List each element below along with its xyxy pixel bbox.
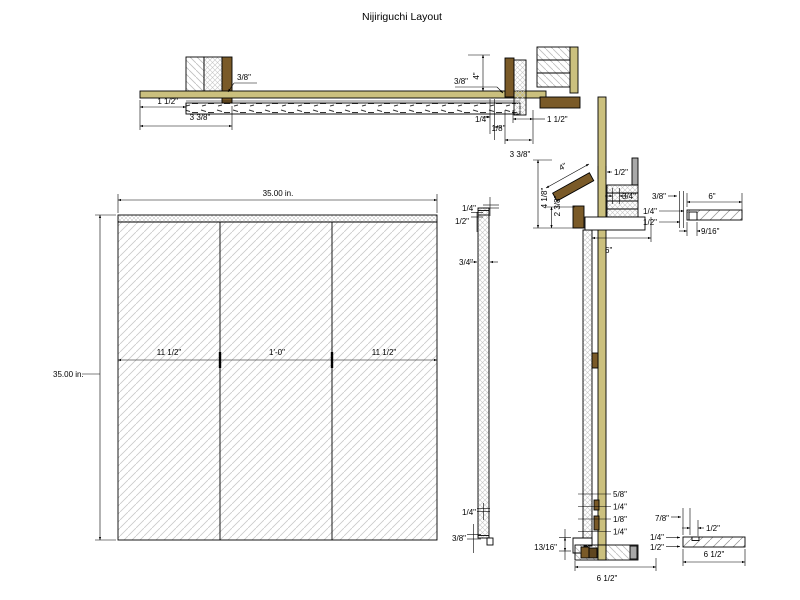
dim-jamb-sill-height: 13/16"	[534, 543, 557, 552]
dim-jamb-sill-width: 6 1/2"	[597, 574, 618, 583]
dim-detail-top-a: 3/8"	[652, 192, 666, 201]
dim-panel-center: 1'-0"	[269, 348, 285, 357]
dim-edge-top-a: 1/4"	[462, 204, 476, 213]
dim-detail-bottom-d: 1/2"	[650, 543, 664, 552]
dim-panel-left-stile: 11 1/2"	[157, 348, 182, 357]
dim-detail-top-d: 1/2"	[643, 218, 657, 227]
dim-head-reveal: 1/8"	[492, 124, 506, 133]
jamb-panel-edge	[583, 230, 592, 545]
dim-jamb-depth: 6"	[605, 246, 612, 255]
dim-jamb-gap-half: 1/2"	[614, 168, 628, 177]
dim-head-left-offset: 1 1/2"	[157, 97, 178, 106]
dim-detail-bottom-e: 6 1/2"	[704, 550, 725, 559]
head-right-brown-rail	[540, 97, 580, 108]
dim-head-jamb-gap: 3/8"	[237, 73, 251, 82]
jamb-head-rail	[585, 217, 645, 230]
jamb-stop-lower	[594, 516, 599, 530]
panel-edge-foot	[487, 538, 493, 545]
dim-jamb-stop: 3/4"	[622, 192, 636, 201]
jamb-sill-brown-b	[589, 548, 597, 558]
head-right-jamb-strip	[505, 58, 514, 97]
panel-edge-view: 1/4" 1/2" 3/4" 1/4" 3/8"	[452, 197, 499, 553]
panel-face	[118, 222, 437, 540]
dim-jamb-stack-b: 1/4"	[613, 503, 627, 512]
drawing-canvas: Nijiriguchi Layout 3/8" 1 1/2" 3 3/8" 3/…	[0, 0, 800, 600]
dim-panel-width: 35.00 in.	[263, 189, 294, 198]
dim-jamb-lintel-inner: 2 3/8"	[553, 196, 562, 217]
dim-edge-bottom-b: 3/8"	[452, 534, 466, 543]
dim-jamb-lintel-height: 4 1/8"	[540, 188, 549, 209]
head-left-block-inner	[204, 57, 222, 91]
head-left-block-outer	[186, 57, 204, 91]
dim-jamb-stack-c: 1/8"	[613, 515, 627, 524]
panel-front-view: 35.00 in. 35.00 in. 11 1/2" 1'-0" 11 1/2…	[53, 189, 437, 540]
dim-head-right-gap: 3/8"	[454, 77, 468, 86]
jamb-sill-brown-a	[581, 547, 589, 558]
dim-detail-top-c: 1/4"	[643, 207, 657, 216]
drawing-sheet: Nijiriguchi Layout 3/8" 1 1/2" 3 3/8" 3/…	[0, 0, 800, 600]
head-right-column	[514, 60, 526, 115]
dim-head-right-height: 4"	[472, 72, 481, 79]
dim-edge-bottom-a: 1/4"	[462, 508, 476, 517]
head-right-tan-strip	[570, 47, 578, 93]
head-right-block	[537, 47, 570, 87]
dim-detail-top-e: 9/16"	[701, 227, 720, 236]
jamb-post	[598, 97, 606, 560]
dim-jamb-stack-d: 1/4"	[613, 528, 627, 537]
dim-detail-bottom-c: 1/4"	[650, 533, 664, 542]
dim-head-right-offset: 1 1/2"	[547, 115, 568, 124]
jamb-batten	[592, 353, 598, 368]
dim-edge-top-b: 1/2"	[455, 217, 469, 226]
panel-edge-strip	[478, 208, 489, 538]
jamb-brown-block	[573, 206, 584, 228]
dim-head-right-depth: 3 3/8"	[510, 150, 531, 159]
dim-head-left-depth: 3 3/8"	[190, 113, 211, 122]
jamb-stop-upper	[594, 500, 599, 510]
jamb-gray-bar	[632, 158, 638, 185]
sill-detail-bottom: 7/8" 1/2" 1/4" 1/2" 6 1/2"	[650, 508, 745, 566]
dim-jamb-stack-a: 5/8"	[613, 490, 627, 499]
dim-detail-bottom-a: 7/8"	[655, 514, 669, 523]
dim-head-panel-gap: 1/4"	[475, 115, 489, 124]
dim-panel-right-stile: 11 1/2"	[372, 348, 397, 357]
jamb-section-view: 4" 1/2" 3/4" 4 1/8" 2 3/8" 6" 5/8" 1/4" …	[533, 97, 656, 583]
dim-edge-thickness: 3/4"	[459, 258, 473, 267]
drawing-title: Nijiriguchi Layout	[362, 11, 442, 23]
detail-top-notch	[689, 212, 697, 220]
dim-jamb-lintel-width: 4"	[557, 161, 568, 172]
head-panel-core	[186, 103, 520, 114]
head-section-view: 3/8" 1 1/2" 3 3/8" 3/8" 4" 1/4" 1/8" 1 1…	[140, 47, 580, 159]
panel-top-band	[118, 215, 437, 222]
dim-panel-height: 35.00 in.	[53, 370, 84, 379]
jamb-post-foot	[598, 545, 606, 560]
detail-bottom-notch	[692, 537, 699, 541]
dim-detail-top-b: 6"	[708, 192, 715, 201]
head-track-board	[140, 91, 546, 98]
dim-detail-bottom-b: 1/2"	[706, 524, 720, 533]
jamb-sill-gray-end	[630, 546, 637, 559]
sill-detail-top: 3/8" 6" 1/4" 1/2" 9/16"	[643, 191, 742, 236]
